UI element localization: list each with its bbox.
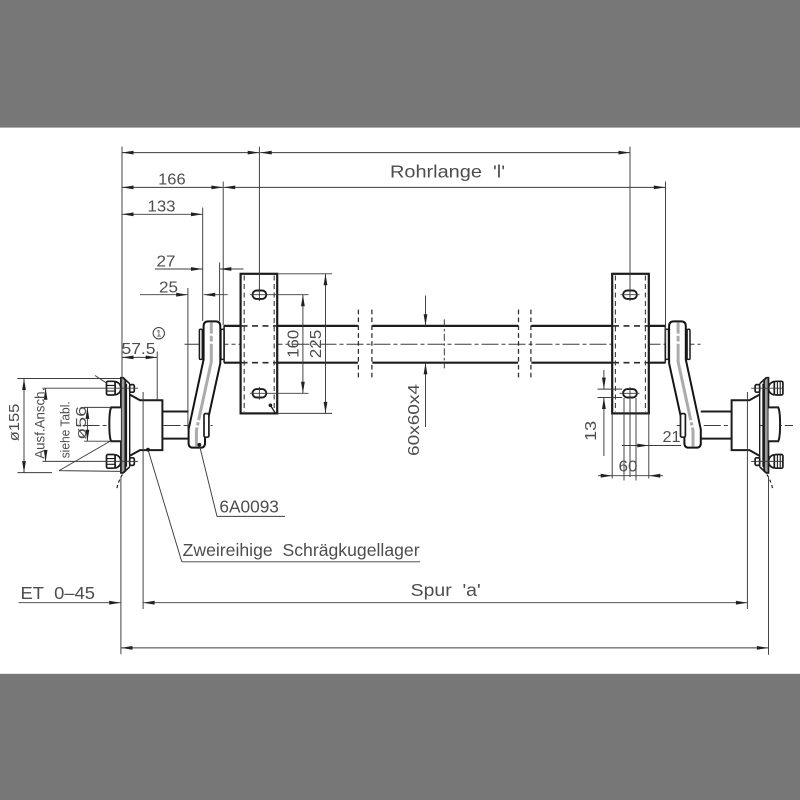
svg-text:Spur 'a': Spur 'a' xyxy=(411,580,481,600)
svg-text:siehe Tabl.: siehe Tabl. xyxy=(58,401,72,458)
svg-text:57.5: 57.5 xyxy=(122,341,156,358)
svg-text:160: 160 xyxy=(285,329,302,357)
svg-text:Ausf.Ansch.: Ausf.Ansch. xyxy=(33,388,48,459)
svg-text:ET 0–45: ET 0–45 xyxy=(21,583,95,603)
svg-text:6A0093: 6A0093 xyxy=(219,497,279,517)
svg-text:13: 13 xyxy=(583,421,600,441)
svg-text:60: 60 xyxy=(619,459,638,476)
svg-text:166: 166 xyxy=(158,172,186,189)
svg-text:Rohrlange 'l': Rohrlange 'l' xyxy=(390,162,505,182)
svg-text:225: 225 xyxy=(308,330,325,359)
svg-text:Zweireihige Schrägkugellager: Zweireihige Schrägkugellager xyxy=(183,540,420,560)
svg-text:60x60x4: 60x60x4 xyxy=(406,384,423,456)
svg-text:25: 25 xyxy=(159,280,178,297)
svg-text:27: 27 xyxy=(157,254,176,271)
svg-text:ø56: ø56 xyxy=(74,406,90,440)
svg-text:21: 21 xyxy=(663,429,681,446)
svg-text:133: 133 xyxy=(148,199,176,216)
svg-text:1: 1 xyxy=(156,329,161,340)
svg-text:ø155: ø155 xyxy=(7,404,23,442)
